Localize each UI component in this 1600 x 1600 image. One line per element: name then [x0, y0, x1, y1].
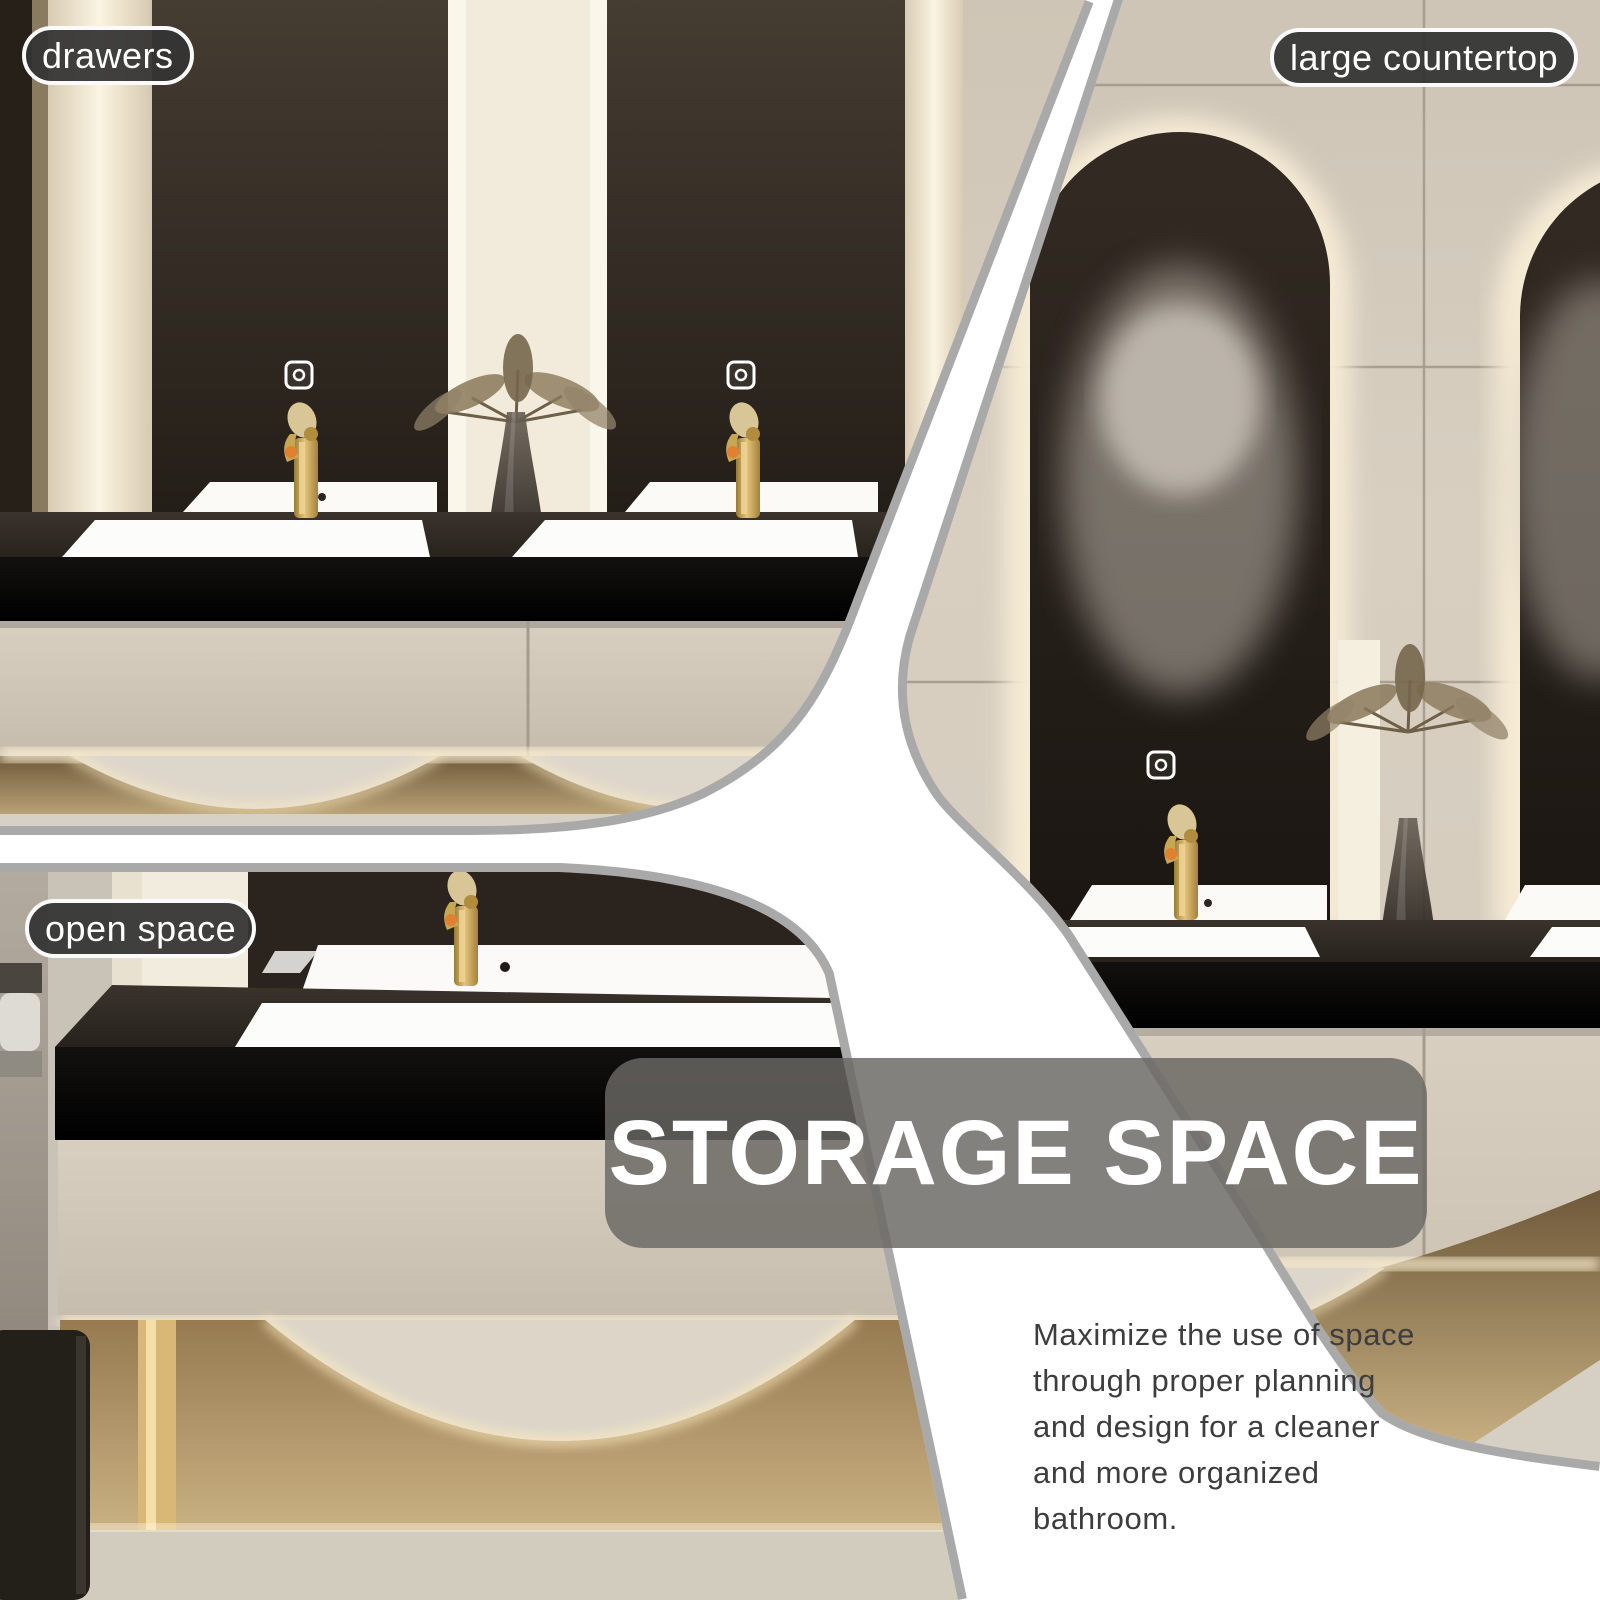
- backlit-glow: [590, 0, 608, 515]
- callout-drawers: drawers: [22, 26, 194, 85]
- paper-towel-holder: [0, 963, 42, 1077]
- mirror-switch-icon: [1148, 752, 1174, 778]
- page-title: STORAGE SPACE: [609, 1101, 1424, 1206]
- description-line: through proper planning: [1033, 1358, 1415, 1404]
- poster-canvas: drawers large countertop open space STOR…: [0, 0, 1600, 1600]
- backlit-glow: [448, 0, 466, 515]
- drain-hole: [318, 493, 326, 501]
- floor-strip: [60, 1530, 960, 1600]
- washbasin: [512, 520, 858, 557]
- callout-open-space: open space: [25, 899, 256, 958]
- trash-bin: [0, 1330, 90, 1600]
- title-banner: STORAGE SPACE: [605, 1058, 1427, 1248]
- description-line: Maximize the use of space: [1033, 1312, 1415, 1358]
- arch-light-core: [1100, 305, 1260, 495]
- drain-hole: [1204, 899, 1212, 907]
- mirror-switch-icon: [728, 362, 754, 388]
- callout-large-countertop: large countertop: [1270, 28, 1578, 87]
- description-paragraph: Maximize the use of space through proper…: [1033, 1312, 1415, 1542]
- mirror-switch-icon: [286, 362, 312, 388]
- backlit-strip: [1338, 640, 1380, 930]
- description-line: bathroom.: [1033, 1496, 1415, 1542]
- floor-glow-line: [60, 1524, 960, 1531]
- description-line: and more organized: [1033, 1450, 1415, 1496]
- description-line: and design for a cleaner: [1033, 1404, 1415, 1450]
- washbasin: [62, 520, 430, 557]
- basin-rim: [1070, 885, 1327, 920]
- drain-hole: [500, 962, 510, 972]
- mirror-panel: [152, 0, 448, 515]
